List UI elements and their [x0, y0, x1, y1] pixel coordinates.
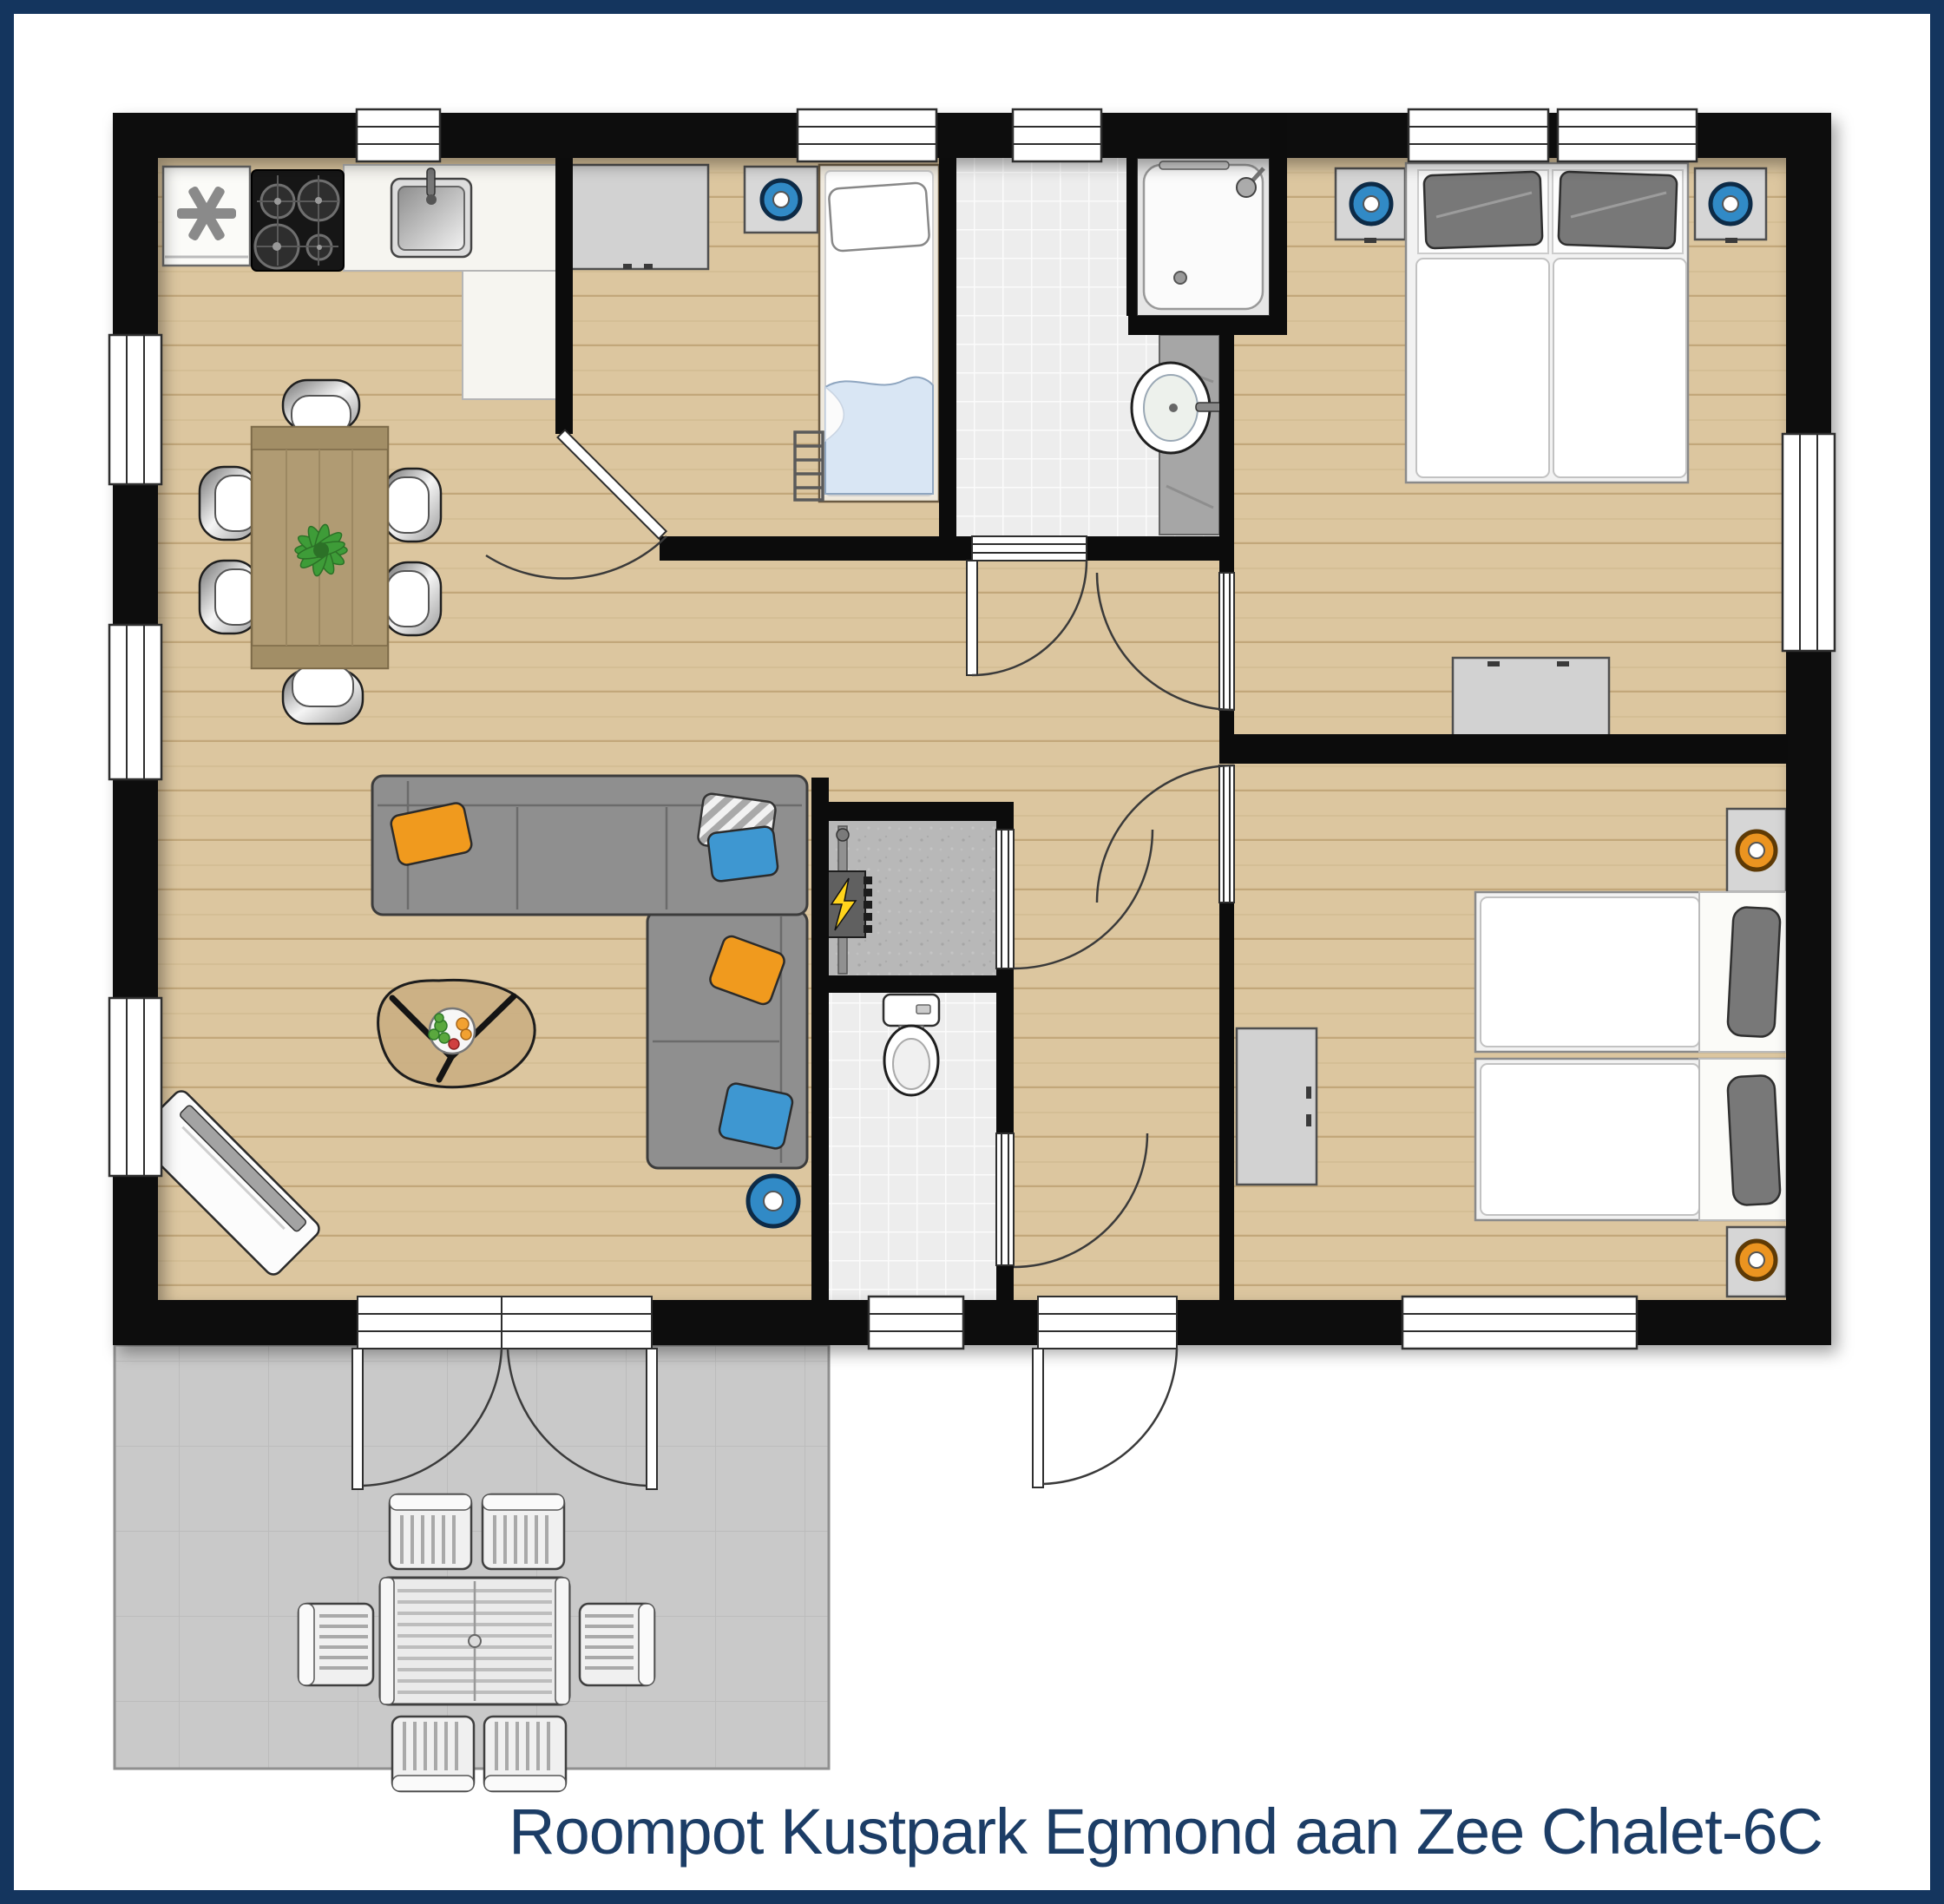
kitchen-counter-extension [463, 271, 562, 399]
toilet [883, 995, 939, 1095]
fridge-freezer [163, 167, 250, 266]
duvet [1553, 259, 1686, 477]
garden-chair [580, 1604, 654, 1685]
fruit-bowl [429, 1008, 475, 1054]
gas-hob [252, 170, 344, 271]
dining-chair [283, 666, 363, 724]
blanket [825, 378, 933, 494]
shower-cabin [1137, 158, 1270, 316]
dining-chair [384, 469, 441, 542]
coffee-table [378, 980, 535, 1087]
bed-pillow [1727, 907, 1781, 1038]
window [869, 1297, 963, 1349]
window [1558, 109, 1697, 161]
dining-chair [384, 562, 441, 635]
wardrobe [569, 165, 708, 269]
dining-chair [200, 467, 259, 540]
electrical-panel [825, 871, 872, 937]
shower-head [1237, 178, 1256, 197]
toilet-room [883, 995, 939, 1095]
dresser [1453, 658, 1609, 744]
window [109, 998, 161, 1176]
bed-pillow [829, 182, 930, 252]
dining-chair [200, 561, 259, 634]
drain [1174, 272, 1186, 284]
window [357, 109, 440, 161]
floor-plan [14, 14, 1930, 1890]
nightstand [745, 167, 818, 233]
nightstand [1727, 809, 1786, 892]
window [109, 335, 161, 484]
window [798, 109, 936, 161]
plan-title: Roompot Kustpark Egmond aan Zee Chalet-6… [509, 1795, 1822, 1868]
nightstand [1336, 168, 1405, 243]
bed-pillow [1727, 1075, 1781, 1206]
window [1402, 1297, 1637, 1349]
garden-table [380, 1578, 569, 1704]
lamp-blue [762, 181, 800, 219]
single-bed [1475, 1059, 1786, 1220]
sofa-cushion-blue [718, 1082, 794, 1150]
lamp-blue [1711, 184, 1750, 224]
lamp-orange [1737, 831, 1776, 870]
lamp-blue [1351, 184, 1391, 224]
door-front-entrance [1033, 1297, 1177, 1487]
wardrobe [1237, 1028, 1317, 1185]
sofa-cushion-blue [707, 826, 778, 883]
nightstand [1727, 1227, 1786, 1297]
window [1409, 109, 1548, 161]
floor-lamp-blue [748, 1176, 798, 1226]
bed-pillow [1424, 172, 1543, 249]
double-bed [1406, 163, 1688, 483]
page-frame: Roompot Kustpark Egmond aan Zee Chalet-6… [0, 0, 1944, 1904]
window [109, 625, 161, 779]
dining-chair [283, 380, 359, 434]
garden-chair [299, 1604, 373, 1685]
garden-chair [484, 1717, 566, 1791]
window [1783, 434, 1835, 651]
window [1013, 109, 1101, 161]
garden-chair [390, 1494, 471, 1569]
duvet [1416, 259, 1549, 477]
bed-pillow [1559, 172, 1678, 249]
garden-chair [483, 1494, 564, 1569]
garden-chair [392, 1717, 474, 1791]
nightstand [1695, 168, 1766, 243]
kitchen-sink [391, 168, 471, 257]
faucet [427, 168, 435, 196]
lamp-orange [1737, 1241, 1776, 1279]
single-bed [1475, 892, 1786, 1052]
